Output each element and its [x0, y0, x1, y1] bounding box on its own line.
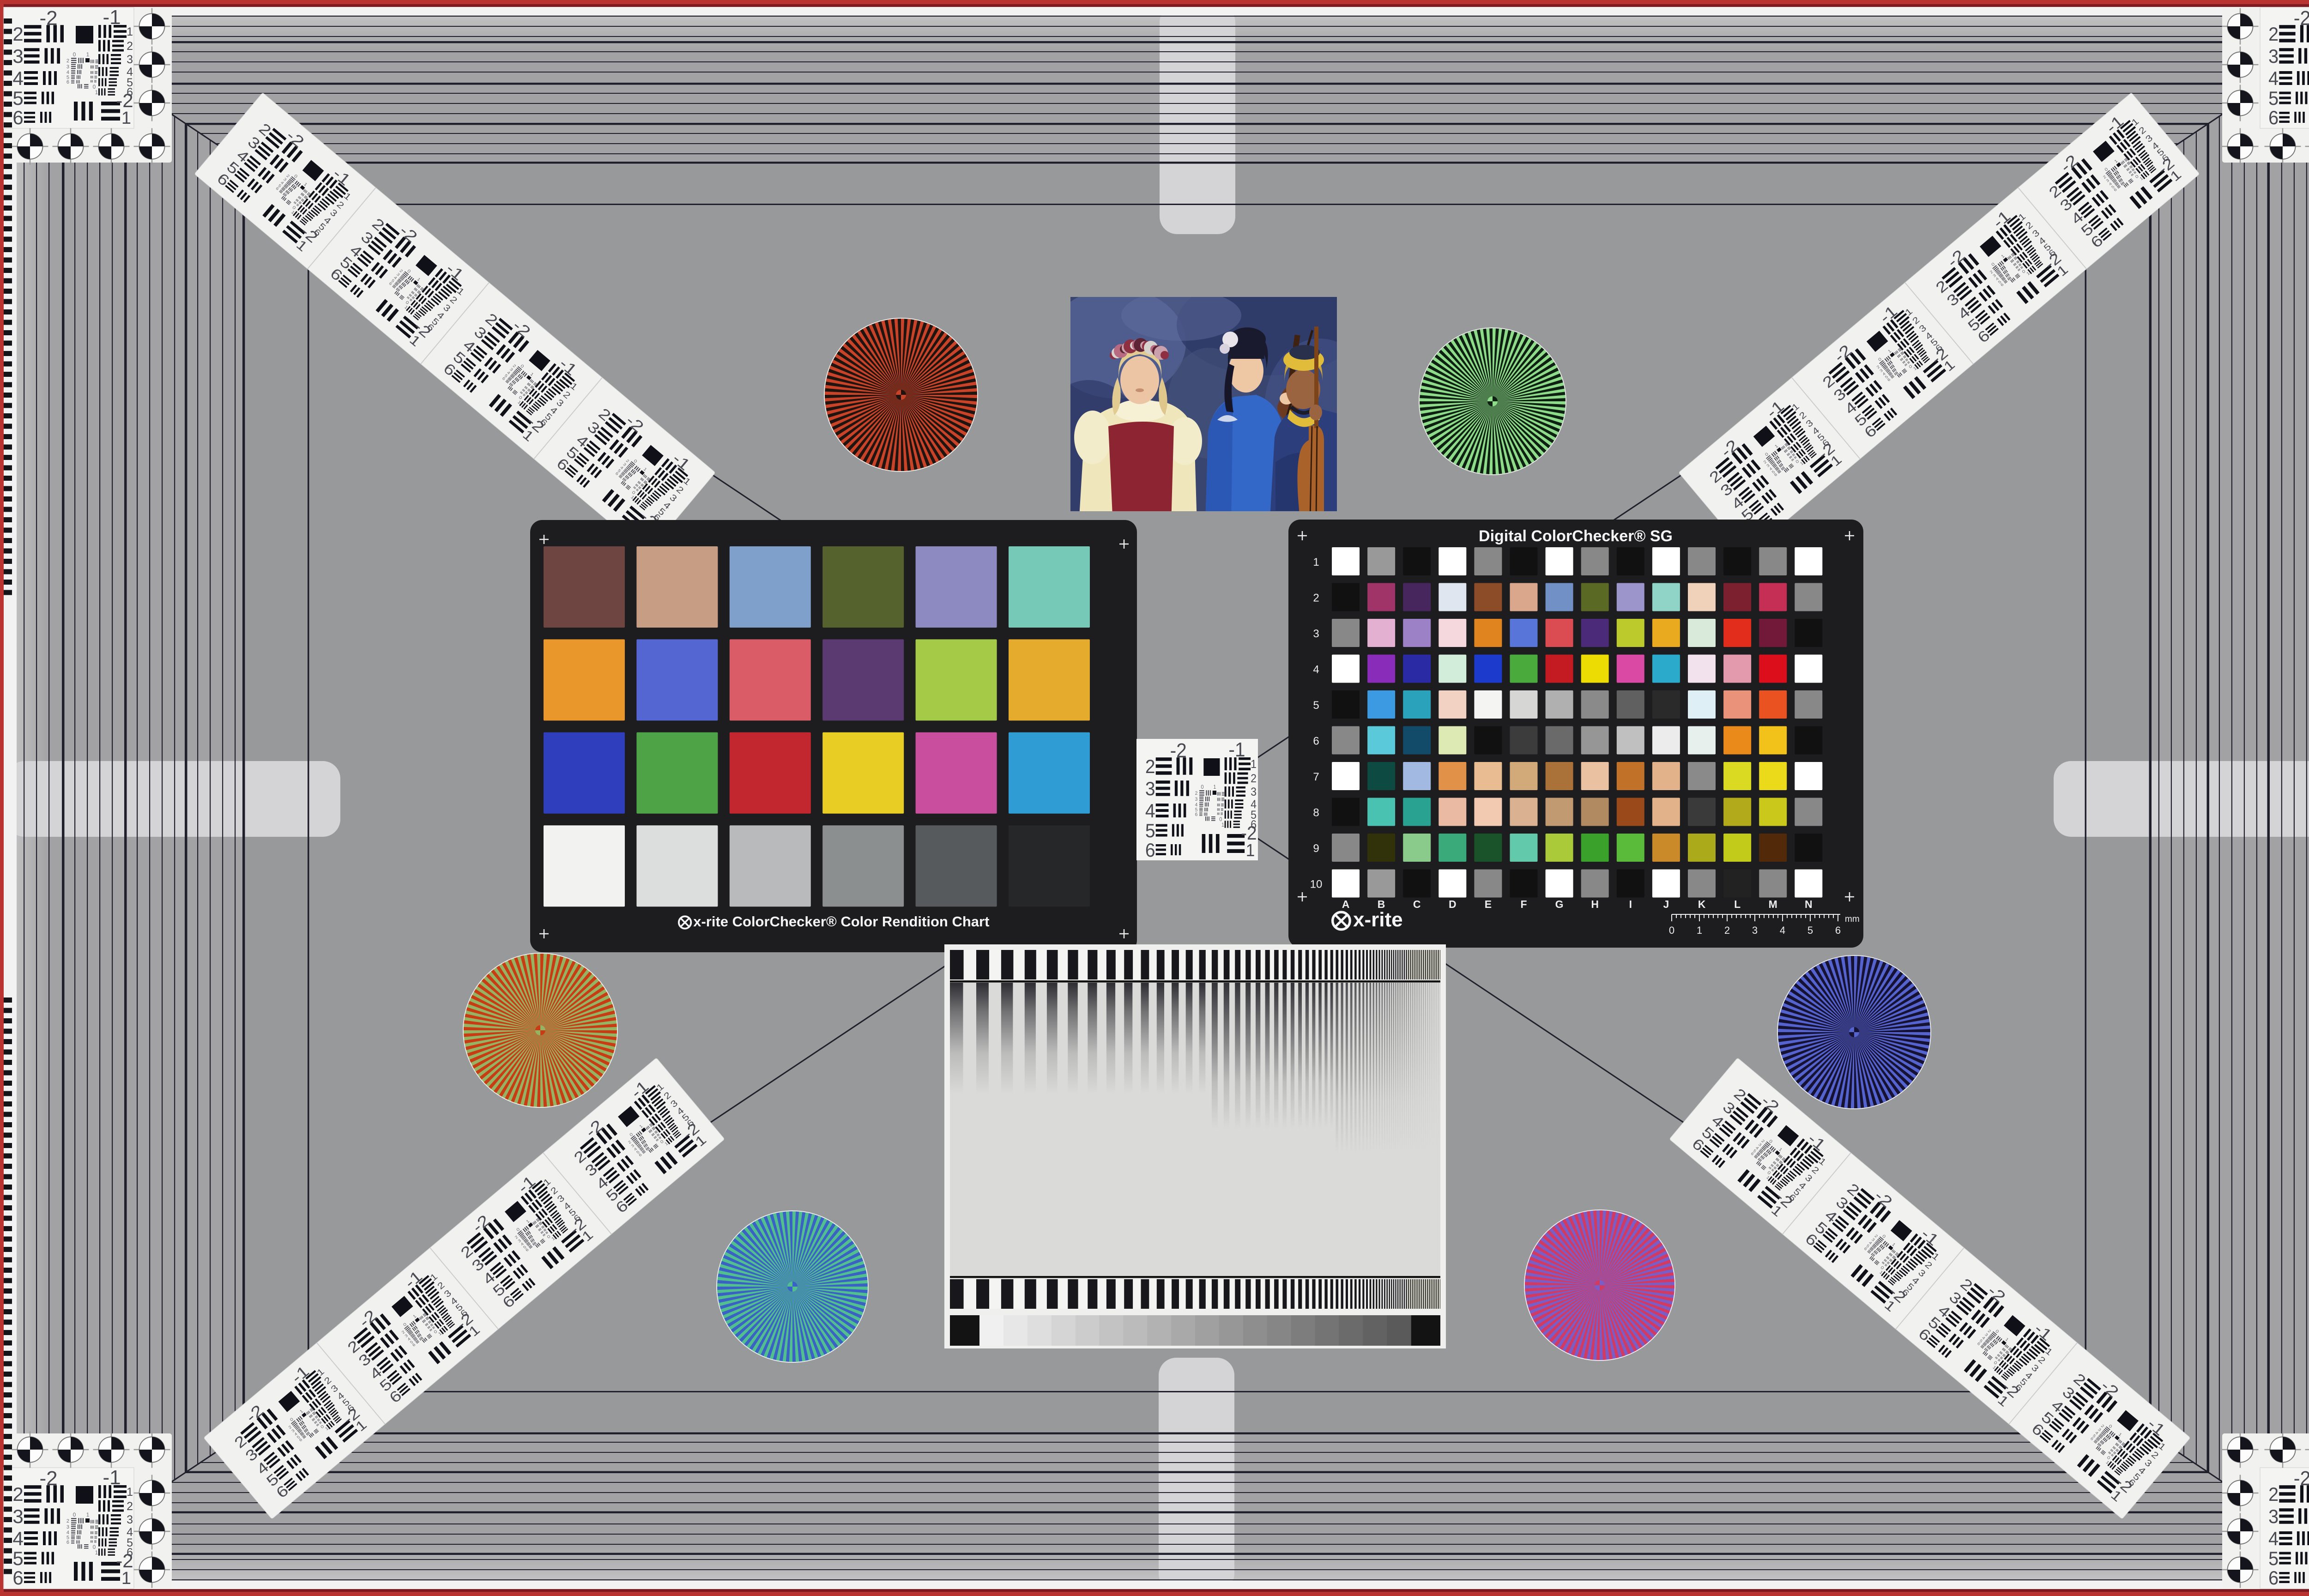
svg-text:2: 2 — [1313, 592, 1319, 605]
svg-text:10: 10 — [1310, 878, 1323, 891]
svg-text:M: M — [1769, 898, 1777, 910]
svg-text:6: 6 — [1835, 925, 1841, 936]
svg-text:4: 4 — [1780, 925, 1785, 936]
svg-text:E: E — [1485, 898, 1492, 910]
svg-text:5: 5 — [1313, 699, 1319, 712]
svg-text:mm: mm — [1845, 914, 1860, 924]
svg-text:⨂ x-rite: ⨂ x-rite — [1331, 908, 1402, 931]
svg-text:K: K — [1698, 898, 1706, 910]
svg-text:6: 6 — [1313, 735, 1319, 748]
svg-text:7: 7 — [1313, 771, 1319, 783]
svg-text:1: 1 — [1313, 556, 1319, 568]
svg-text:1: 1 — [1697, 925, 1702, 936]
svg-text:J: J — [1663, 898, 1669, 910]
svg-text:4: 4 — [1313, 664, 1319, 676]
svg-text:9: 9 — [1313, 842, 1319, 855]
svg-text:D: D — [1449, 898, 1457, 910]
svg-text:N: N — [1805, 898, 1813, 910]
svg-text:5: 5 — [1807, 925, 1813, 936]
svg-text:3: 3 — [1752, 925, 1758, 936]
svg-text:3: 3 — [1313, 628, 1319, 640]
svg-text:C: C — [1413, 898, 1421, 910]
svg-text:I: I — [1629, 898, 1632, 910]
svg-text:H: H — [1591, 898, 1599, 910]
svg-text:2: 2 — [1724, 925, 1730, 936]
svg-text:F: F — [1520, 898, 1527, 910]
svg-text:L: L — [1734, 898, 1741, 910]
svg-text:⨂ x-rite ColorChecker® Color: ⨂ x-rite ColorChecker® Color Rendition C… — [678, 913, 990, 930]
svg-text:8: 8 — [1313, 807, 1319, 819]
svg-text:0: 0 — [1669, 925, 1674, 936]
svg-text:Digital ColorChecker® SG: Digital ColorChecker® SG — [1479, 527, 1673, 545]
svg-text:G: G — [1555, 898, 1564, 910]
